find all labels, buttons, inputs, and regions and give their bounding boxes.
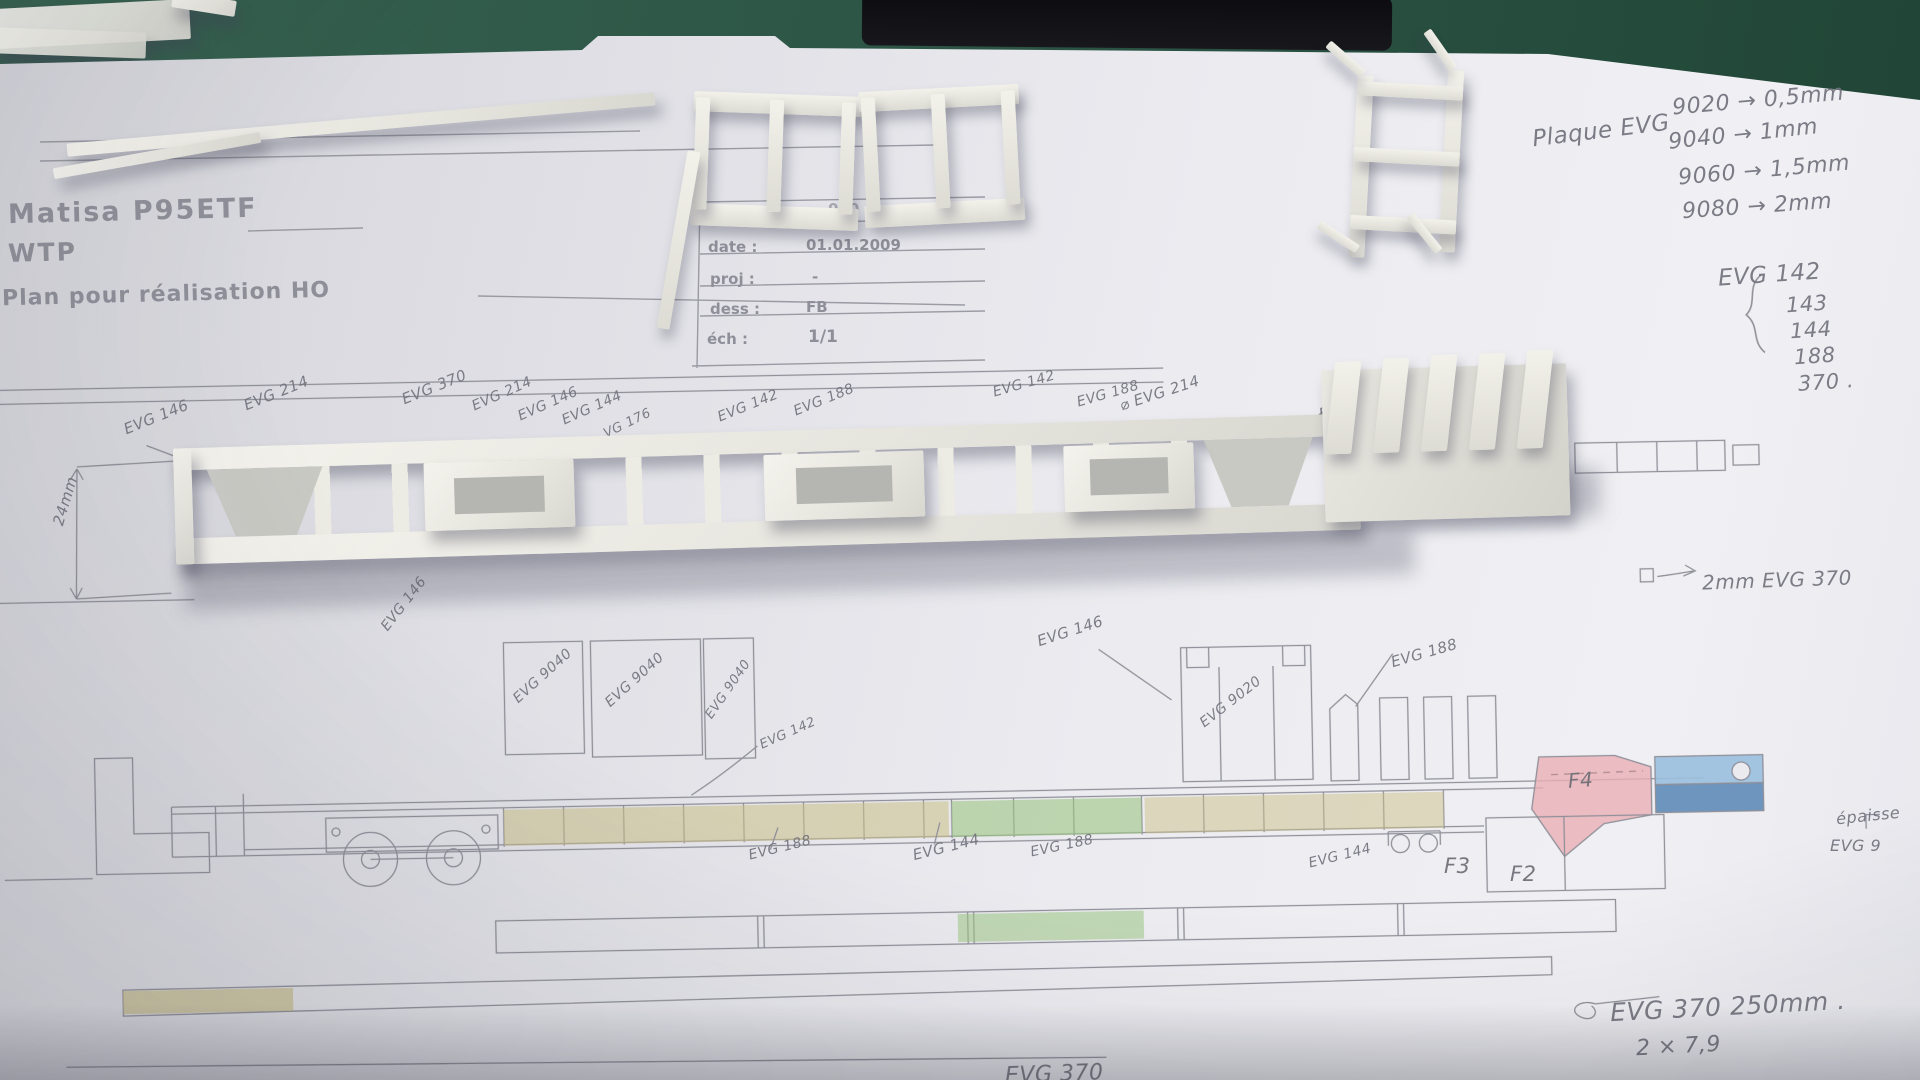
edge-note-line2: EVG 9 bbox=[1830, 836, 1881, 855]
chassis-end-left bbox=[173, 448, 194, 564]
evg-list-item: 370 . bbox=[1797, 368, 1854, 396]
frame-post bbox=[838, 102, 856, 214]
date-label: date : bbox=[708, 238, 757, 256]
jig-fin bbox=[1373, 358, 1409, 453]
frame-post bbox=[861, 97, 881, 212]
jig-fin bbox=[1517, 350, 1554, 449]
brand-title: Matisa P95ETF bbox=[8, 193, 258, 231]
chassis-panel bbox=[423, 459, 575, 531]
evg-list-item: 143 bbox=[1785, 291, 1828, 318]
scale-label: éch : bbox=[707, 330, 748, 348]
dess-label: dess : bbox=[710, 300, 760, 318]
scale-value: 1/1 bbox=[808, 327, 838, 347]
length-note-detail: 2 × 7,9 bbox=[1635, 1032, 1721, 1061]
evg-list-item: 188 bbox=[1793, 343, 1836, 370]
proj-value: - bbox=[812, 268, 818, 286]
styrene-frame-left bbox=[689, 85, 862, 241]
fixing-label-f4: F4 bbox=[1567, 767, 1594, 793]
panel-opening bbox=[454, 476, 545, 515]
chassis-panel bbox=[1063, 442, 1195, 512]
styrene-frame-right bbox=[858, 76, 1026, 242]
ladder-rail bbox=[1348, 75, 1374, 258]
frame-post bbox=[766, 100, 784, 212]
panel-opening bbox=[1090, 457, 1169, 495]
brand-subtitle: WTP bbox=[8, 237, 78, 268]
jig-fin bbox=[1325, 361, 1361, 454]
fixing-label-f3: F3 bbox=[1444, 854, 1470, 878]
dess-value: FB bbox=[806, 298, 828, 316]
styrene-ladder-top-right bbox=[1319, 56, 1500, 280]
frame-post bbox=[1001, 90, 1021, 205]
photo-of-model-plan: { "brand": { "line1": "Matisa P95ETF", "… bbox=[0, 0, 1920, 1080]
evg-list-item: 144 bbox=[1789, 317, 1832, 344]
jig-fin bbox=[1469, 353, 1506, 450]
jig-fin bbox=[1421, 354, 1458, 451]
bottom-cut-label: EVG 370 bbox=[1005, 1060, 1104, 1080]
chassis-panel bbox=[763, 450, 925, 521]
frame-post bbox=[931, 94, 951, 209]
assembly-jig-block bbox=[1321, 363, 1570, 522]
panel-opening bbox=[796, 465, 893, 504]
proj-label: proj : bbox=[710, 270, 755, 288]
fixing-label-f2: F2 bbox=[1510, 862, 1536, 886]
